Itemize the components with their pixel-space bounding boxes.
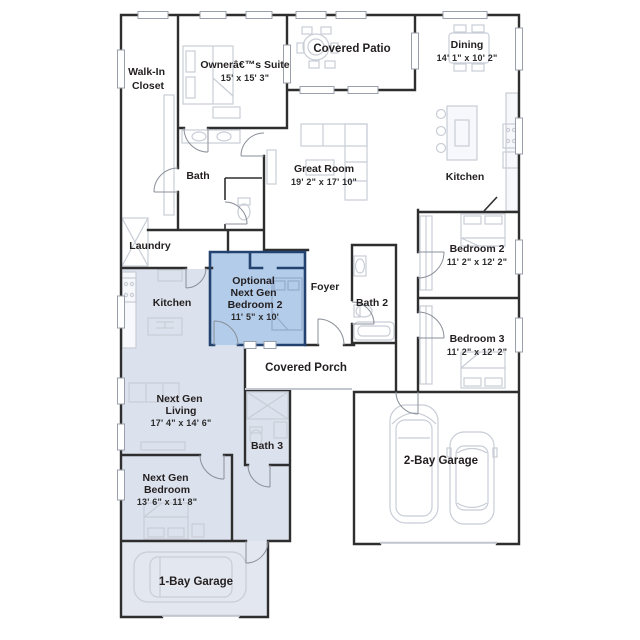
interior-thin-walls <box>225 178 497 230</box>
great-room-sofa <box>267 124 367 200</box>
room-label-bath-3: Bath 3 <box>251 440 283 452</box>
room-dims-owners-suite: 15' x 15' 3" <box>221 73 269 83</box>
room-dims-next-gen-living: 17' 4" x 14' 6" <box>151 418 212 428</box>
room-label-walk-in-closet: Walk-In Closet <box>128 66 168 92</box>
room-label-bath-2: Bath 2 <box>356 297 388 309</box>
room-dims-bedroom-2: 11' 2" x 12' 2" <box>447 257 507 267</box>
room-label-two-bay-garage: 2-Bay Garage <box>404 455 478 467</box>
room-label-bedroom-2: Bedroom 2 <box>450 243 505 255</box>
room-label-foyer: Foyer <box>311 281 340 293</box>
room-label-one-bay-garage: 1-Bay Garage <box>159 576 233 588</box>
bedroom-2-door <box>418 252 444 278</box>
room-label-laundry: Laundry <box>129 240 171 252</box>
room-dims-bedroom-3: 11' 2" x 12' 2" <box>447 347 507 357</box>
room-label-covered-patio: Covered Patio <box>313 43 390 55</box>
room-label-dining: Dining <box>451 39 484 51</box>
floorplan-canvas: Walk-In Closet Ownerâ€™s Suite 15' x 15'… <box>0 0 640 640</box>
room-dims-next-gen-bedroom: 13' 6" x 11' 8" <box>137 497 197 507</box>
room-label-owners-suite: Ownerâ€™s Suite <box>200 59 289 71</box>
room-label-next-gen-kitchen: Kitchen <box>153 297 192 309</box>
bedroom-3-door <box>418 312 444 338</box>
room-label-bath: Bath <box>186 170 209 182</box>
room-label-kitchen: Kitchen <box>446 171 485 183</box>
bath-hall-door <box>241 133 264 156</box>
kitchen-island <box>437 93 519 211</box>
room-label-great-room: Great Room <box>294 163 354 175</box>
room-label-bedroom-3: Bedroom 3 <box>450 333 505 345</box>
closet-shelving <box>164 95 174 215</box>
floorplan-svg: Walk-In Closet Ownerâ€™s Suite 15' x 15'… <box>0 0 640 640</box>
room-dims-great-room: 19' 2" x 17' 10" <box>291 177 357 187</box>
room-dims-optional-bedroom: 11' 5" x 10' <box>231 312 279 322</box>
two-bay-garage-door <box>396 392 418 414</box>
car-two-bay-sedan <box>447 432 497 524</box>
front-door <box>318 319 344 345</box>
room-label-next-gen-bedroom: Next Gen Bedroom <box>142 472 191 496</box>
room-label-optional-bedroom: Optional Next Gen Bedroom 2 <box>228 275 283 311</box>
room-dims-dining: 14' 1" x 10' 2" <box>437 53 498 63</box>
room-label-covered-porch: Covered Porch <box>265 362 347 374</box>
